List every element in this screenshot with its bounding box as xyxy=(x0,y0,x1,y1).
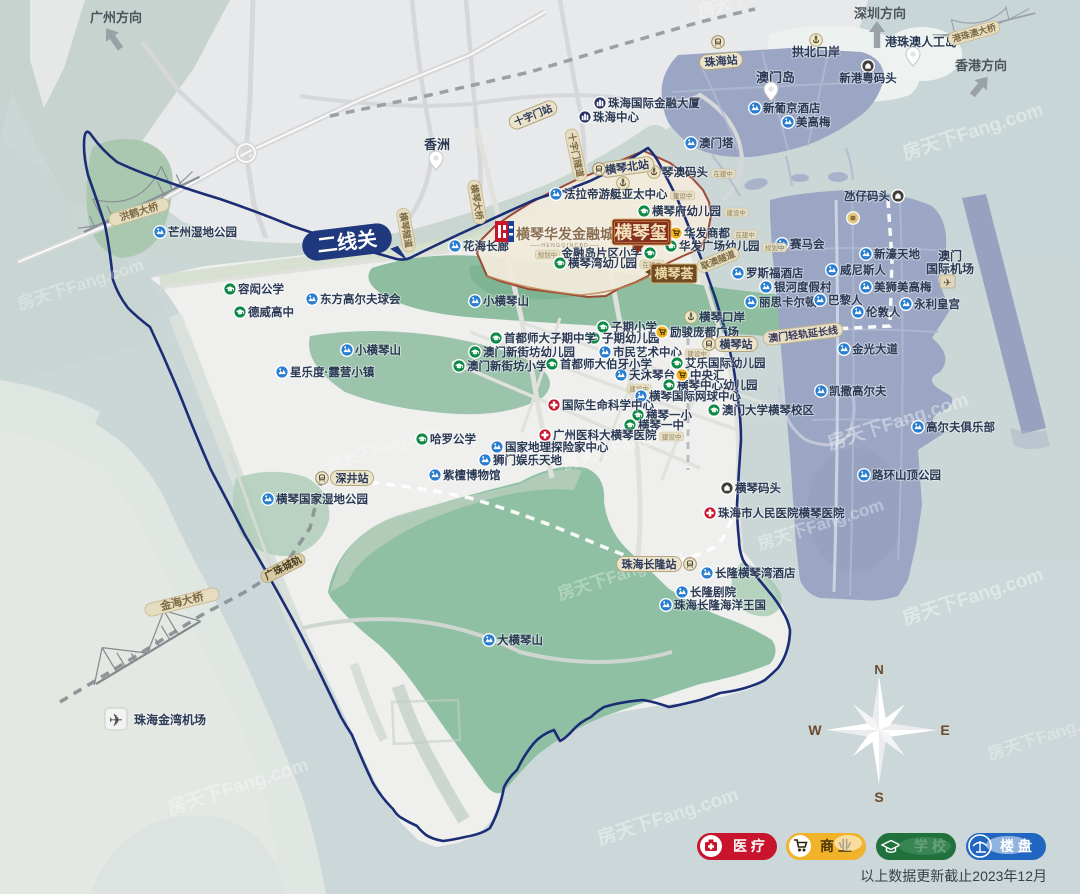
svg-text:星乐度·露营小镇: 星乐度·露营小镇 xyxy=(290,365,375,379)
svg-text:以上数据更新截止2023年12月: 以上数据更新截止2023年12月 xyxy=(860,868,1047,884)
svg-text:芒州湿地公园: 芒州湿地公园 xyxy=(168,225,237,239)
svg-text:东方高尔夫球会: 东方高尔夫球会 xyxy=(320,292,401,306)
svg-text:S: S xyxy=(874,789,883,805)
svg-text:紫檀博物馆: 紫檀博物馆 xyxy=(443,468,501,482)
svg-text:横琴码头: 横琴码头 xyxy=(735,481,781,495)
svg-text:建设中: 建设中 xyxy=(687,349,707,358)
svg-text:建设中: 建设中 xyxy=(673,191,693,200)
svg-text:横琴国家湿地公园: 横琴国家湿地公园 xyxy=(276,492,368,506)
svg-text:中央汇: 中央汇 xyxy=(690,368,725,382)
svg-text:琴澳码头: 琴澳码头 xyxy=(661,165,708,179)
svg-text:建设中: 建设中 xyxy=(662,432,682,441)
svg-text:小横琴山: 小横琴山 xyxy=(354,343,401,357)
svg-text:横琴湾幼儿园: 横琴湾幼儿园 xyxy=(568,256,637,270)
svg-text:澳门塔: 澳门塔 xyxy=(699,136,734,150)
svg-text:威尼斯人: 威尼斯人 xyxy=(840,263,886,277)
svg-text:巴黎人: 巴黎人 xyxy=(828,293,863,307)
svg-text:—— H E N G Q I N C B D ——: —— H E N G Q I N C B D —— xyxy=(530,243,599,249)
svg-text:国家地理探险家中心: 国家地理探险家中心 xyxy=(505,440,609,454)
svg-text:长隆剧院: 长隆剧院 xyxy=(690,585,736,599)
svg-text:横琴华发金融城: 横琴华发金融城 xyxy=(516,226,614,242)
svg-text:横琴口岸: 横琴口岸 xyxy=(699,310,745,324)
svg-text:医 疗: 医 疗 xyxy=(733,838,765,854)
svg-text:珠海国际金融大厦: 珠海国际金融大厦 xyxy=(608,96,700,110)
svg-text:广州医科大横琴医院: 广州医科大横琴医院 xyxy=(553,428,657,442)
svg-text:广州方向: 广州方向 xyxy=(90,10,142,25)
svg-text:W: W xyxy=(808,722,822,738)
svg-text:新濠天地: 新濠天地 xyxy=(874,247,920,261)
svg-text:规划中: 规划中 xyxy=(765,243,785,252)
svg-text:狮门娱乐天地: 狮门娱乐天地 xyxy=(492,453,562,467)
svg-text:华发广场幼儿园: 华发广场幼儿园 xyxy=(679,239,760,253)
svg-text:规划中: 规划中 xyxy=(538,250,558,259)
svg-text:在建中: 在建中 xyxy=(735,230,755,239)
svg-text:银河度假村: 银河度假村 xyxy=(774,280,832,294)
svg-text:高尔夫俱乐部: 高尔夫俱乐部 xyxy=(926,420,995,434)
svg-text:永利皇宫: 永利皇宫 xyxy=(913,297,960,311)
svg-text:子期小学: 子期小学 xyxy=(611,320,657,334)
svg-text:横琴站: 横琴站 xyxy=(720,337,753,351)
svg-text:珠海中心: 珠海中心 xyxy=(593,110,639,124)
svg-text:容闳公学: 容闳公学 xyxy=(237,282,284,296)
svg-text:横琴玺: 横琴玺 xyxy=(615,223,668,243)
svg-text:香港方向: 香港方向 xyxy=(954,58,1007,73)
svg-text:罗斯福酒店: 罗斯福酒店 xyxy=(746,266,804,280)
svg-text:大横琴山: 大横琴山 xyxy=(497,633,543,647)
svg-text:长隆横琴湾酒店: 长隆横琴湾酒店 xyxy=(715,566,796,580)
svg-text:新港粤码头: 新港粤码头 xyxy=(839,71,897,85)
svg-text:珠海金湾机场: 珠海金湾机场 xyxy=(134,712,206,727)
svg-text:横琴荟: 横琴荟 xyxy=(654,266,694,281)
svg-text:澳门大学横琴校区: 澳门大学横琴校区 xyxy=(722,403,814,417)
svg-text:凯撒高尔夫: 凯撒高尔夫 xyxy=(829,384,887,398)
svg-text:珠海长隆站: 珠海长隆站 xyxy=(622,557,677,571)
svg-text:子期幼儿园: 子期幼儿园 xyxy=(602,331,660,345)
svg-text:氹仔码头: 氹仔码头 xyxy=(844,189,890,203)
svg-text:珠海长隆海洋王国: 珠海长隆海洋王国 xyxy=(674,598,766,612)
svg-text:珠海市人民医院横琴医院: 珠海市人民医院横琴医院 xyxy=(718,506,845,520)
svg-text:市民艺术中心: 市民艺术中心 xyxy=(613,345,682,359)
svg-text:✈: ✈ xyxy=(109,711,123,730)
svg-text:N: N xyxy=(874,662,883,677)
svg-text:香洲: 香洲 xyxy=(423,137,450,152)
svg-text:港珠澳人工岛: 港珠澳人工岛 xyxy=(885,34,957,49)
svg-text:哈罗公学: 哈罗公学 xyxy=(430,432,476,446)
svg-text:国际机场: 国际机场 xyxy=(926,261,974,276)
svg-text:E: E xyxy=(940,722,949,738)
svg-text:伦敦人: 伦敦人 xyxy=(866,305,901,319)
svg-text:新葡京酒店: 新葡京酒店 xyxy=(763,101,821,115)
svg-text:首都师大子期中学: 首都师大子期中学 xyxy=(504,331,596,345)
svg-text:法拉帝游艇亚太中心: 法拉帝游艇亚太中心 xyxy=(564,187,668,201)
svg-text:美高梅: 美高梅 xyxy=(796,115,831,129)
svg-text:德威高中: 德威高中 xyxy=(247,305,294,319)
svg-text:澳门新街坊小学: 澳门新街坊小学 xyxy=(467,359,548,373)
svg-text:横琴府幼儿园: 横琴府幼儿园 xyxy=(652,204,721,218)
svg-text:澳门岛: 澳门岛 xyxy=(756,70,795,85)
svg-text:华发商都: 华发商都 xyxy=(684,226,730,240)
svg-text:国际生命科学中心: 国际生命科学中心 xyxy=(562,398,654,412)
svg-text:澳门新街坊幼儿园: 澳门新街坊幼儿园 xyxy=(483,345,575,359)
svg-text:丽思卡尔顿: 丽思卡尔顿 xyxy=(759,295,817,309)
svg-text:路环山顶公园: 路环山顶公园 xyxy=(872,468,941,482)
svg-text:深井站: 深井站 xyxy=(336,471,369,485)
svg-text:澳门: 澳门 xyxy=(938,248,962,263)
svg-text:拱北口岸: 拱北口岸 xyxy=(792,44,840,59)
svg-text:美狮美高梅: 美狮美高梅 xyxy=(874,280,932,294)
svg-text:小横琴山: 小横琴山 xyxy=(482,294,529,308)
svg-text:建设中: 建设中 xyxy=(726,208,746,217)
svg-text:✈: ✈ xyxy=(943,278,951,289)
svg-text:金光大道: 金光大道 xyxy=(851,342,898,356)
svg-text:在建中: 在建中 xyxy=(713,169,733,178)
svg-text:艾乐国际幼儿园: 艾乐国际幼儿园 xyxy=(685,356,766,370)
svg-text:深圳方向: 深圳方向 xyxy=(854,6,906,21)
svg-text:赛马会: 赛马会 xyxy=(789,237,825,251)
svg-text:首都师大伯牙小学: 首都师大伯牙小学 xyxy=(560,357,652,371)
